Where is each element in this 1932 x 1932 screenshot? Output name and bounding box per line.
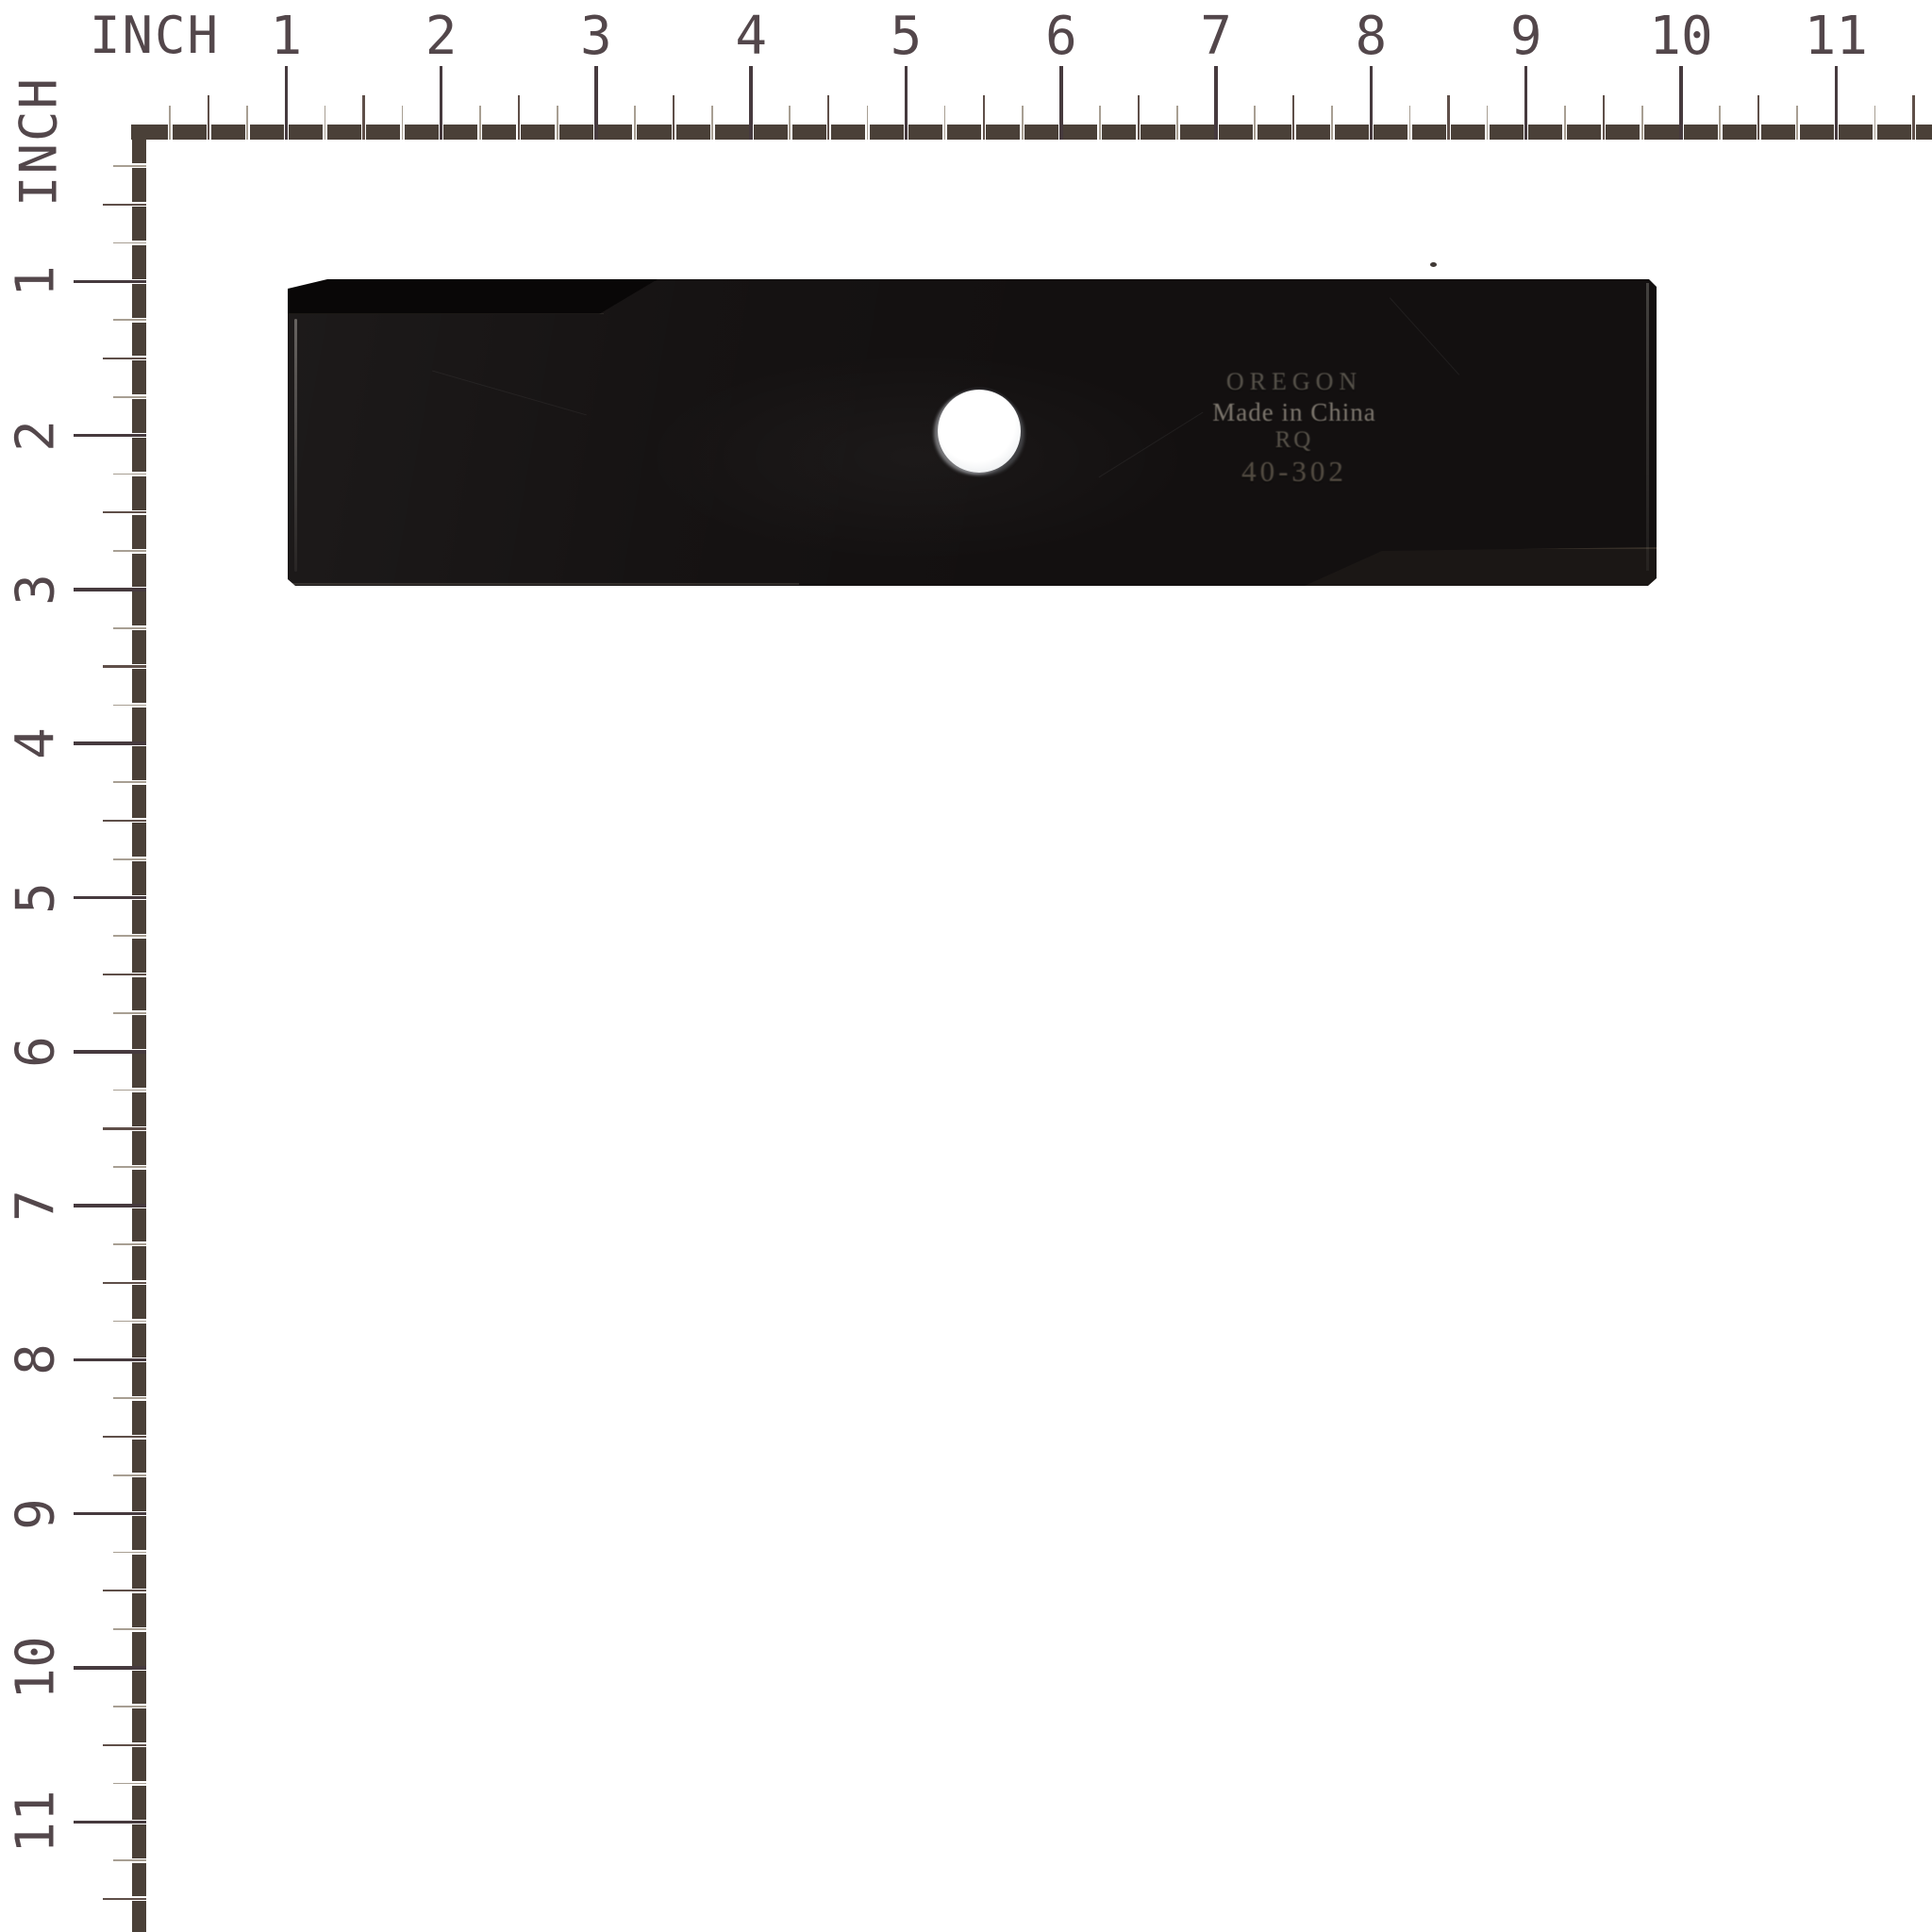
ruler-number: 4 [735,6,767,67]
inch-tick [1370,66,1374,140]
stamp-part-number: 40-302 [1181,457,1407,487]
ruler-number: 9 [1510,6,1542,67]
quarter-inch-tick [113,705,146,707]
quarter-inch-tick [1796,106,1798,140]
quarter-inch-tick [113,1090,146,1091]
quarter-inch-tick [113,1243,146,1245]
half-inch-tick [518,95,520,140]
ruler-number: 6 [1045,6,1077,67]
ruler-number: 6 [6,1036,67,1068]
ruler-number: 3 [6,574,67,606]
inch-tick [74,434,146,438]
quarter-inch-tick [113,1397,146,1399]
quarter-inch-tick [113,1783,146,1785]
half-inch-tick [103,974,146,975]
ruler-number: 1 [6,265,67,297]
quarter-inch-tick [1719,106,1721,140]
quarter-inch-tick [1409,106,1411,140]
quarter-inch-tick [789,106,791,140]
half-inch-tick [983,95,985,140]
ruler-number: 9 [6,1498,67,1530]
inch-tick [440,66,443,140]
quarter-inch-tick [1641,106,1643,140]
inch-tick [1835,66,1839,140]
quarter-inch-tick [113,858,146,860]
quarter-inch-tick [557,106,558,140]
edger-blade: OREGON Made in China RQ 40-302 [288,279,1657,586]
ruler-number: 7 [6,1190,67,1222]
quarter-inch-tick [113,1166,146,1168]
ruler-number: 1 [270,6,302,67]
ruler-number: 3 [580,6,612,67]
half-inch-tick [103,820,146,822]
blade-center-hole [938,390,1021,473]
ruler-number: 5 [891,6,923,67]
left-ruler-unit-label: INCH [9,76,69,207]
quarter-inch-tick [113,474,146,475]
half-inch-tick [103,1898,146,1900]
quarter-inch-tick [1254,106,1256,140]
quarter-inch-tick [113,935,146,937]
quarter-inch-tick [113,781,146,783]
quarter-inch-tick [944,106,946,140]
ruler-number: 7 [1200,6,1232,67]
half-inch-tick [103,1436,146,1438]
half-inch-tick [673,95,675,140]
quarter-inch-tick [113,1706,146,1707]
ruler-number: 11 [6,1790,67,1854]
half-inch-tick [1912,95,1914,140]
photo-canvas: INCH 1234567891011 INCH 1234567891011 OR… [0,0,1932,1932]
inch-tick [74,280,146,284]
half-inch-tick [362,95,364,140]
inch-tick [749,66,753,140]
inch-tick [74,1666,146,1670]
inch-tick [74,1204,146,1207]
inch-tick [905,66,908,140]
half-inch-tick [1757,95,1759,140]
quarter-inch-tick [113,550,146,552]
ruler-number: 2 [6,420,67,452]
quarter-inch-tick [246,106,248,140]
quarter-inch-tick [113,1859,146,1861]
ruler-number: 11 [1805,6,1868,67]
quarter-inch-tick [113,319,146,321]
blade-scratch [432,371,587,416]
ruler-number: 10 [1649,6,1712,67]
half-inch-tick [103,1744,146,1746]
ruler-number: 8 [6,1344,67,1376]
ruler-number: 2 [425,6,458,67]
quarter-inch-tick [325,106,326,140]
blade-bottom-edge-highlight [290,583,799,585]
quarter-inch-tick [867,106,869,140]
ruler-number: 5 [6,882,67,914]
half-inch-tick [208,95,209,140]
inch-tick [1214,66,1218,140]
inch-tick [74,588,146,591]
inch-tick [74,1358,146,1362]
quarter-inch-tick [113,165,146,167]
quarter-inch-tick [113,1012,146,1014]
inch-tick [74,1512,146,1516]
quarter-inch-tick [113,1552,146,1554]
inch-tick [74,896,146,900]
blade-top-bevel-seam [288,313,604,314]
quarter-inch-tick [1099,106,1101,140]
quarter-inch-tick [1487,106,1489,140]
quarter-inch-tick [1874,106,1876,140]
quarter-inch-tick [1022,106,1024,140]
blade-right-edge-highlight [1646,283,1649,571]
stamp-brand: OREGON [1181,368,1407,396]
inch-tick [1524,66,1528,140]
half-inch-tick [103,511,146,513]
quarter-inch-tick [113,396,146,398]
inch-tick [74,1821,146,1824]
inch-tick [594,66,598,140]
quarter-inch-tick [113,1474,146,1476]
quarter-inch-tick [113,1628,146,1630]
ruler-number: 8 [1356,6,1388,67]
blade-top-cutting-bevel [288,279,665,314]
quarter-inch-tick [402,106,404,140]
inch-tick [1059,66,1063,140]
half-inch-tick [827,95,829,140]
quarter-inch-tick [113,242,146,244]
blade-left-edge-highlight [294,319,297,572]
inch-tick [1679,66,1683,140]
ruler-number: 10 [6,1636,67,1699]
quarter-inch-tick [1331,106,1333,140]
top-ruler-unit-label: INCH [90,6,220,65]
inch-tick [74,741,146,745]
inch-tick [74,1050,146,1054]
half-inch-tick [1138,95,1140,140]
quarter-inch-tick [479,106,481,140]
quarter-inch-tick [1176,106,1178,140]
half-inch-tick [103,358,146,359]
quarter-inch-tick [1564,106,1566,140]
quarter-inch-tick [169,106,171,140]
quarter-inch-tick [634,106,636,140]
blade-bottom-cutting-bevel [1297,547,1657,586]
half-inch-tick [1603,95,1605,140]
inch-tick [285,66,289,140]
stamp-code: RQ [1181,428,1407,453]
half-inch-tick [103,204,146,206]
half-inch-tick [103,665,146,667]
blade-stamp-text: OREGON Made in China RQ 40-302 [1181,368,1407,487]
half-inch-tick [103,1590,146,1591]
half-inch-tick [103,1282,146,1284]
quarter-inch-tick [711,106,713,140]
dust-speck [1430,262,1437,267]
blade-scratch [1390,297,1459,375]
stamp-origin: Made in China [1181,398,1407,426]
ruler-number: 4 [6,727,67,759]
quarter-inch-tick [113,1321,146,1323]
quarter-inch-tick [113,627,146,629]
half-inch-tick [1292,95,1294,140]
half-inch-tick [1447,95,1449,140]
half-inch-tick [103,1127,146,1129]
